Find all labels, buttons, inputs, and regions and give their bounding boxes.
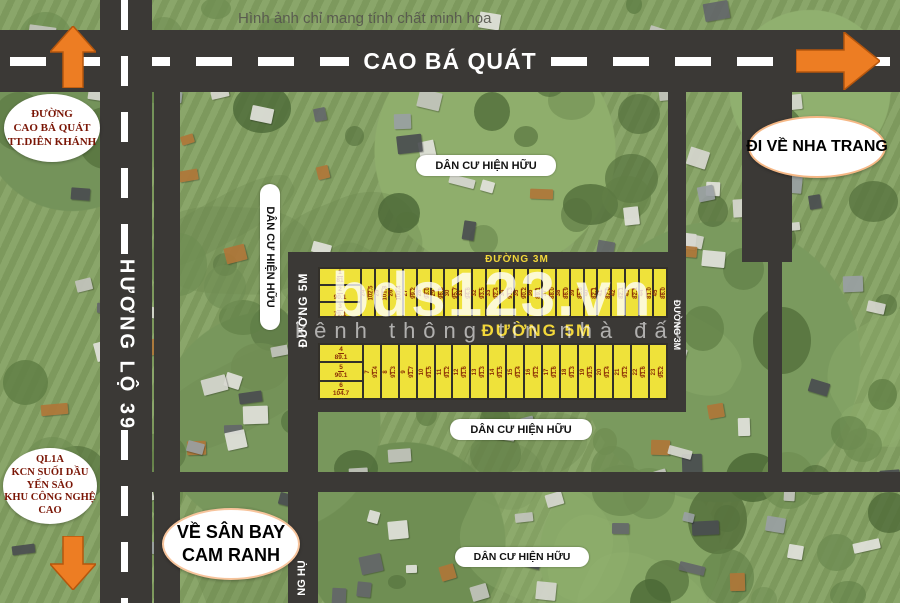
house-block (515, 512, 534, 523)
callout-line: TT.DIÊN KHÁNH (8, 135, 96, 149)
house-block (692, 521, 719, 537)
road-bottom-horizontal (152, 472, 900, 492)
house-block (331, 588, 346, 603)
tree-blob (817, 534, 856, 572)
lane-dashes-bottom (121, 430, 128, 603)
label-existing-residential-bottom: DÂN CƯ HIỆN HỮU (455, 547, 589, 567)
arrow-right-icon (796, 32, 880, 90)
label-existing-residential-left: DÂN CƯ HIỆN HỮU (260, 184, 280, 330)
lower-plot-row: 791.4891.3991.71091.51191.21291.61391.31… (364, 345, 666, 398)
plot-9: 991.7 (400, 345, 418, 398)
plot-18: 1891.3 (561, 345, 579, 398)
callout-line: KHU CÔNG NGHỆ (4, 492, 96, 505)
tree-blob (388, 575, 407, 589)
house-block (316, 165, 330, 180)
house-block (394, 114, 412, 130)
tree-blob (868, 379, 897, 411)
callout-cam-ranh: VỀ SÂN BAY CAM RANH (162, 508, 300, 580)
callout-cao-ba-quat: ĐƯỜNG CAO BÁ QUÁT TT.DIÊN KHÁNH (4, 94, 100, 162)
plot-8: 891.3 (382, 345, 400, 398)
house-block (12, 543, 36, 555)
house-block (180, 133, 196, 146)
label-existing-residential-middle: DÂN CƯ HIỆN HỮU (450, 419, 592, 440)
plot-10: 1091.5 (418, 345, 436, 398)
arrow-up-icon (50, 26, 96, 88)
lower-plot-strip: 489.1590.16104.7 791.4891.3991.71091.511… (318, 343, 668, 400)
tree-blob (204, 265, 247, 309)
plot-19: 1991.5 (579, 345, 597, 398)
plot-14: 1491.5 (489, 345, 507, 398)
plot-21: 2191.2 (614, 345, 632, 398)
road-partial-label: NG HỤ (296, 560, 308, 595)
tree-blob (201, 0, 231, 19)
callout-ql1a: QL1A KCN SUỐI DẦU YẾN SÀO KHU CÔNG NGHỆ … (3, 448, 97, 524)
plot-13: 1391.3 (471, 345, 489, 398)
house-block (667, 445, 693, 460)
house-block (682, 511, 695, 523)
house-block (853, 538, 881, 553)
house-block (787, 544, 804, 560)
plot-22: 2291.6 (632, 345, 650, 398)
house-block (707, 403, 725, 420)
house-block (470, 583, 490, 602)
label-existing-residential-top: DÂN CƯ HIỆN HỮU (416, 155, 556, 176)
plot-16: 1691.2 (525, 345, 543, 398)
tree-blob (514, 126, 538, 147)
house-block (702, 0, 730, 23)
house-block (623, 206, 640, 226)
road-huong-lo-39-label: HƯƠNG LỘ 39 (115, 259, 138, 431)
callout-nha-trang: ĐI VỀ NHA TRANG (748, 116, 886, 178)
callout-line: VỀ SÂN BAY (177, 521, 285, 544)
plot-7: 791.4 (364, 345, 382, 398)
callout-line: CAO (38, 505, 61, 518)
plot-5: 590.1 (320, 363, 362, 381)
house-block (480, 179, 496, 193)
house-block (612, 523, 629, 534)
house-block (416, 89, 443, 112)
tree-blob (3, 360, 48, 405)
house-block (530, 189, 554, 200)
lower-left-column: 489.1590.16104.7 (320, 345, 364, 398)
callout-line: CAO BÁ QUÁT (13, 121, 90, 135)
plot-12: 1291.6 (453, 345, 471, 398)
callout-line: CAM RANH (182, 544, 280, 567)
tree-blob (843, 428, 882, 462)
house-block (387, 520, 409, 540)
tree-blob (345, 126, 364, 146)
tree-blob (868, 492, 900, 532)
house-block (313, 107, 327, 122)
house-block (358, 553, 384, 575)
house-block (685, 146, 709, 169)
house-block (738, 418, 751, 437)
plot-11: 1191.2 (436, 345, 454, 398)
callout-line: ĐƯỜNG (31, 107, 73, 121)
plot-6: 6104.7 (320, 382, 362, 398)
house-block (701, 250, 726, 268)
plot-4: 489.1 (320, 345, 362, 363)
plot-15: 1591.4 (507, 345, 525, 398)
tree-blob (474, 92, 510, 131)
house-block (387, 448, 411, 462)
plot-20: 2091.4 (596, 345, 614, 398)
plot-23: 2395.2 (650, 345, 666, 398)
tree-blob (751, 587, 777, 603)
road-right-connector (768, 260, 782, 472)
house-block (41, 403, 69, 417)
tree-blob (561, 198, 592, 232)
watermark-tagline: kênh thông tin nhà đất (295, 318, 689, 344)
lane-dashes-top (121, 0, 128, 255)
house-block (438, 563, 457, 581)
house-block (356, 581, 372, 597)
plot-17: 1791.6 (543, 345, 561, 398)
house-block (396, 134, 423, 155)
road-3m-right-vertical (668, 92, 686, 412)
callout-line: KCN SUỐI DẦU (11, 467, 88, 480)
arrow-down-icon (50, 536, 96, 590)
callout-line: QL1A (36, 454, 64, 467)
house-block (243, 406, 269, 425)
site-plan-map: Hình ảnh chỉ mang tính chất minh họa CAO… (0, 0, 900, 603)
house-block (367, 510, 381, 525)
house-block (225, 429, 248, 451)
callout-line: ĐI VỀ NHA TRANG (746, 138, 888, 156)
road-cao-ba-quat-label: CAO BÁ QUÁT (363, 48, 536, 75)
house-block (178, 168, 199, 182)
tree-blob (618, 94, 660, 135)
road-right-entry (742, 92, 792, 262)
tree-blob (700, 549, 754, 603)
house-block (75, 277, 94, 293)
tree-blob (849, 181, 899, 222)
house-block (765, 515, 786, 533)
house-block (461, 220, 475, 240)
road-below-lower-strip (288, 400, 686, 412)
house-block (808, 194, 822, 210)
plot-45: 4586.0 (654, 269, 666, 316)
house-block (406, 565, 417, 574)
disclaimer-text: Hình ảnh chỉ mang tính chất minh họa (238, 10, 492, 27)
callout-line: YẾN SÀO (27, 480, 73, 493)
house-block (843, 275, 864, 292)
tree-blob (626, 0, 642, 14)
house-block (730, 572, 746, 590)
tree-blob (830, 581, 866, 603)
house-block (535, 581, 557, 601)
house-block (71, 187, 90, 200)
